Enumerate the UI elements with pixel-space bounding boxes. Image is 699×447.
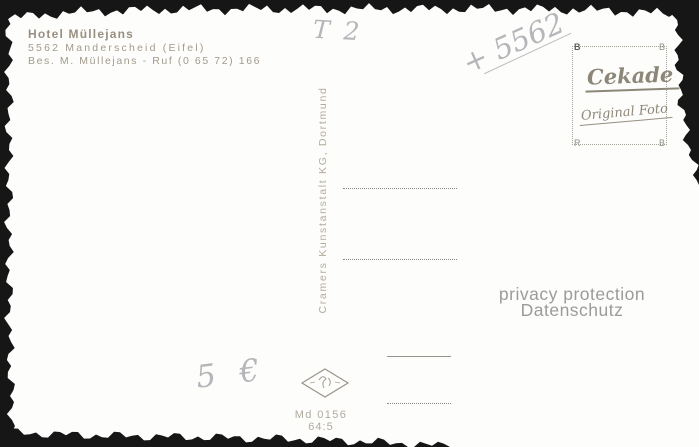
hotel-name: Hotel Müllejans — [28, 28, 261, 41]
privacy-watermark: privacy protection Datenschutz — [478, 287, 666, 318]
stamp-corner-bottom-left: R — [574, 139, 581, 148]
original-foto-label: Original Foto — [578, 101, 672, 126]
cekade-logo: Cekade — [585, 61, 680, 92]
address-line-1 — [343, 188, 457, 189]
postcard-back: Hotel Müllejans 5562 Manderscheid (Eifel… — [0, 0, 699, 447]
catalog-series: 64:5 — [292, 422, 350, 433]
handwriting-t2: T 2 — [312, 15, 363, 47]
catalog-number: Md 0156 64:5 — [292, 410, 350, 433]
hotel-address: 5562 Manderscheid (Eifel) — [28, 42, 261, 55]
hotel-imprint: Hotel Müllejans 5562 Manderscheid (Eifel… — [28, 28, 261, 67]
diamond-logo-icon — [300, 367, 350, 399]
privacy-watermark-line2: Datenschutz — [478, 303, 666, 319]
publisher-imprint: Cramers Kunstanstalt KG, Dortmund — [317, 75, 331, 325]
hotel-contact: Bes. M. Müllejans - Ruf (0 65 72) 166 — [28, 55, 261, 68]
stamp-corner-top-right: B — [659, 43, 665, 52]
stamp-corner-bottom-right: B — [659, 139, 665, 148]
handwriting-postal-code-text: + 5562 — [457, 6, 569, 81]
catalog-code: Md 0156 — [292, 410, 350, 421]
stamp-corner-top-left: B — [574, 43, 581, 52]
address-line-4 — [387, 403, 451, 404]
address-line-2 — [343, 259, 457, 260]
handwriting-postal-code: + 5562 — [447, 1, 579, 84]
address-line-3 — [387, 356, 451, 357]
handwriting-price: 5 € — [194, 352, 261, 395]
stamp-box: B B R B Cekade Original Foto — [572, 46, 667, 145]
